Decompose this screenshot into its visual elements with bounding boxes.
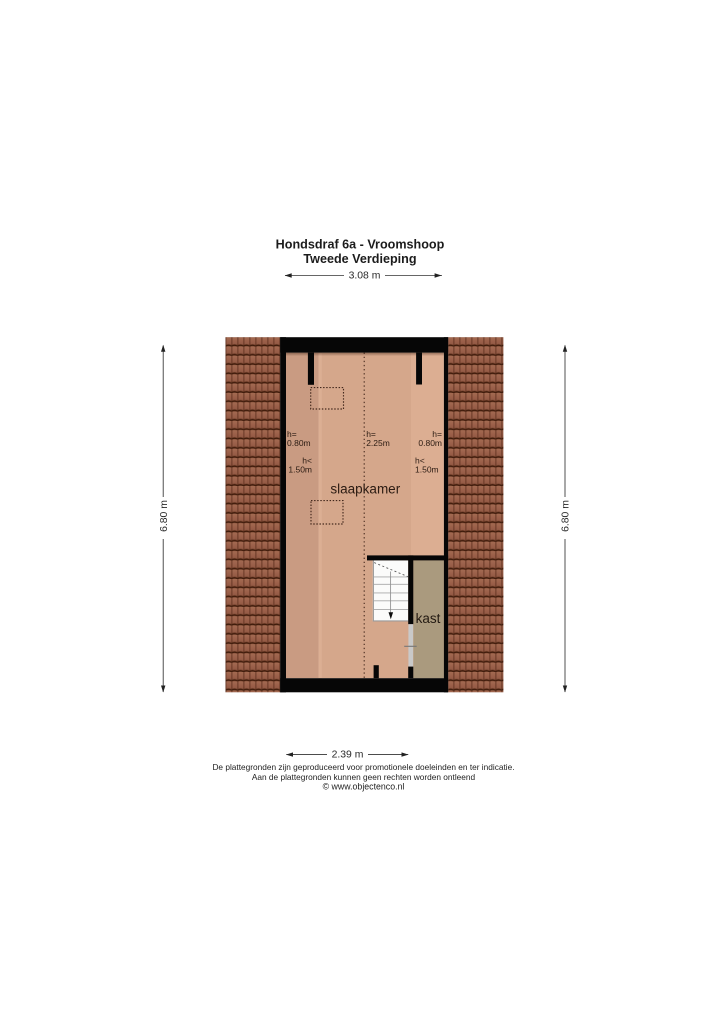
svg-text:De plattegronden zijn geproduc: De plattegronden zijn geproduceerd voor … — [212, 762, 514, 772]
svg-text:Aan de plattegronden kunnen ge: Aan de plattegronden kunnen geen rechten… — [252, 772, 476, 782]
svg-text:1.50m: 1.50m — [288, 464, 312, 474]
svg-text:Tweede Verdieping: Tweede Verdieping — [303, 252, 416, 266]
svg-text:2.25m: 2.25m — [366, 438, 390, 448]
svg-text:2.39 m: 2.39 m — [332, 750, 364, 761]
svg-text:kast: kast — [416, 611, 441, 626]
svg-text:© www.objectenco.nl: © www.objectenco.nl — [323, 781, 405, 791]
svg-text:0.80m: 0.80m — [418, 438, 442, 448]
svg-text:0.80m: 0.80m — [287, 438, 311, 448]
svg-text:Hondsdraf 6a - Vroomshoop: Hondsdraf 6a - Vroomshoop — [276, 238, 445, 252]
svg-text:slaapkamer: slaapkamer — [330, 481, 400, 496]
svg-text:3.08 m: 3.08 m — [349, 271, 381, 282]
svg-text:6.80 m: 6.80 m — [561, 500, 572, 532]
svg-text:6.80 m: 6.80 m — [159, 500, 170, 532]
svg-text:1.50m: 1.50m — [415, 464, 439, 474]
